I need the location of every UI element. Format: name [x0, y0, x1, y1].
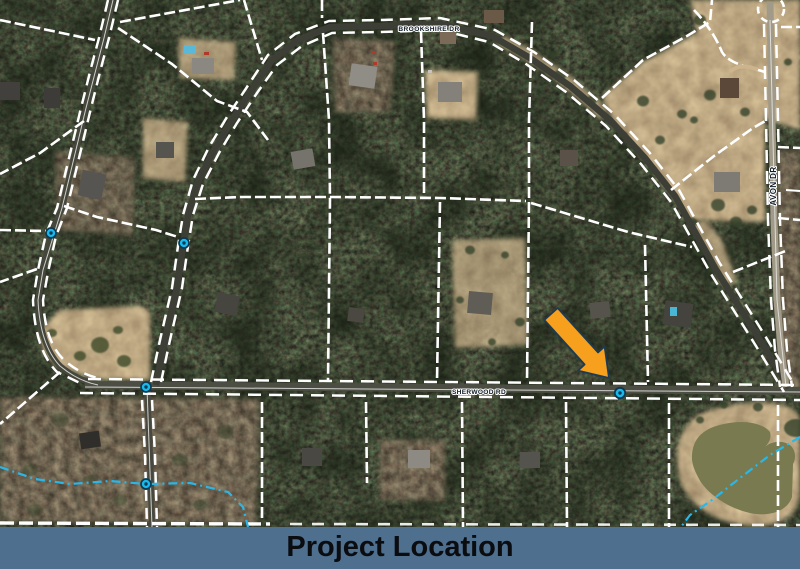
- svg-text:BROOKSHIRE DR: BROOKSHIRE DR: [398, 26, 459, 33]
- svg-text:Project Location: Project Location: [286, 531, 513, 563]
- svg-text:SHERWOOD RD: SHERWOOD RD: [452, 389, 506, 396]
- svg-text:AVON DR: AVON DR: [769, 166, 778, 205]
